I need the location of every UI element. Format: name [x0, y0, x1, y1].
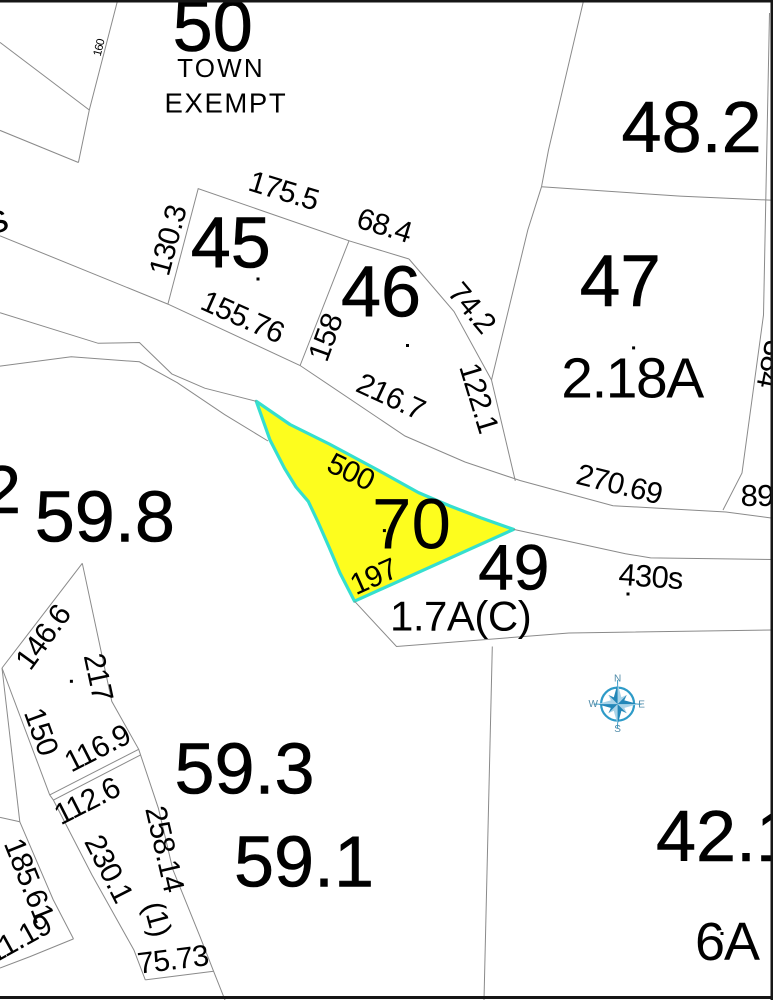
svg-text:48.2: 48.2	[622, 88, 762, 168]
svg-text:TOWN: TOWN	[177, 53, 265, 83]
svg-text:59.8: 59.8	[35, 478, 175, 558]
svg-text:59.3: 59.3	[174, 729, 314, 809]
svg-text:430s: 430s	[618, 557, 685, 596]
svg-text:89: 89	[741, 478, 773, 513]
svg-text:E: E	[638, 699, 645, 710]
svg-text:S: S	[614, 724, 621, 735]
svg-text:47: 47	[580, 241, 661, 322]
svg-text:59.1: 59.1	[234, 823, 374, 903]
svg-text:W: W	[588, 699, 598, 710]
svg-text:2.18A: 2.18A	[561, 347, 704, 411]
svg-text:46: 46	[341, 252, 421, 332]
svg-text:42.1: 42.1	[656, 797, 773, 877]
svg-text:1.7A(C): 1.7A(C)	[390, 592, 531, 639]
svg-text:45: 45	[191, 203, 271, 283]
svg-text:N: N	[614, 673, 621, 684]
svg-text:2: 2	[0, 452, 21, 528]
svg-text:6A: 6A	[695, 912, 760, 972]
svg-text:70: 70	[372, 486, 451, 565]
svg-text:EXEMPT: EXEMPT	[165, 87, 288, 118]
